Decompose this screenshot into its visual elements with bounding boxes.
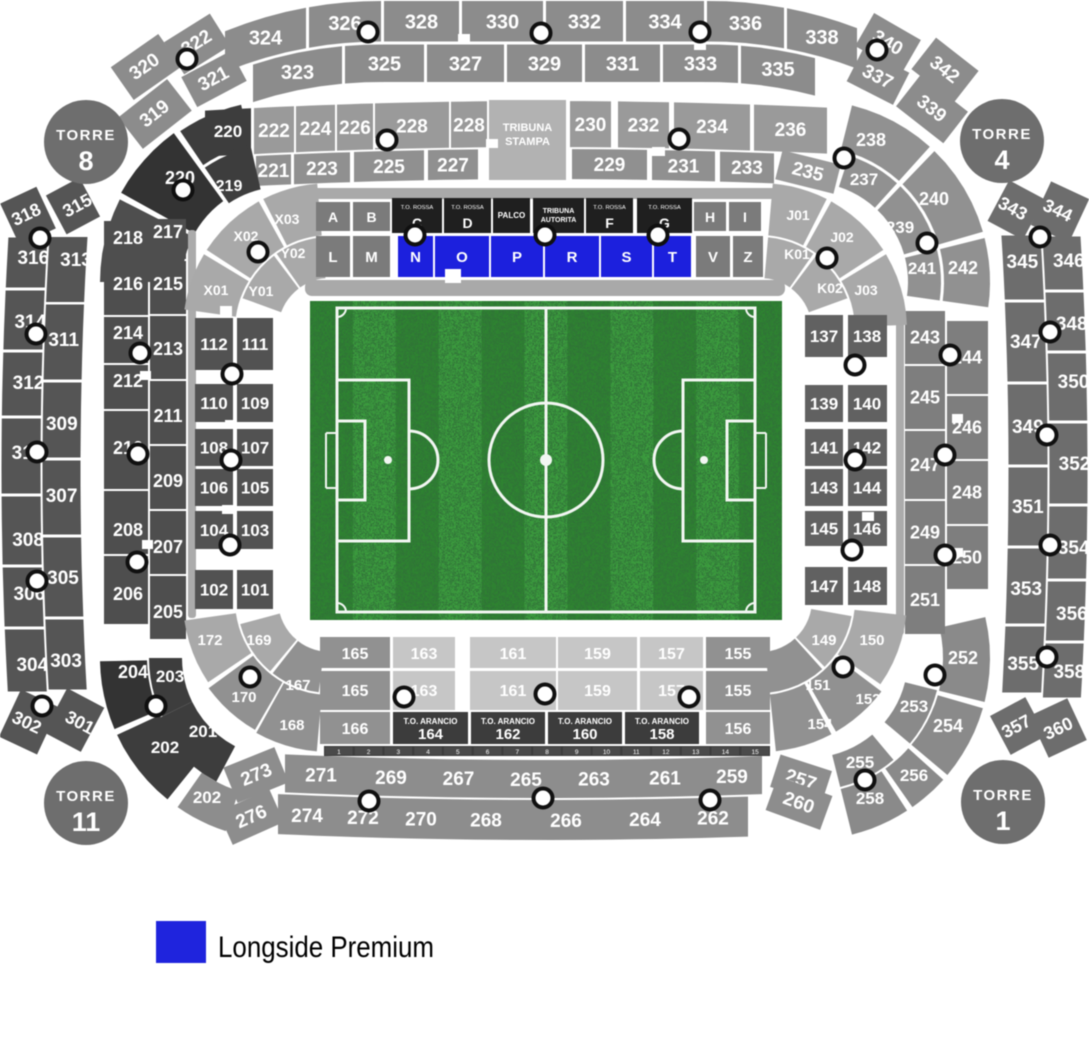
svg-text:207: 207 (153, 537, 183, 557)
svg-text:159: 159 (584, 683, 611, 700)
svg-text:346: 346 (1053, 251, 1085, 272)
svg-text:101: 101 (241, 581, 269, 600)
svg-text:I: I (743, 209, 747, 225)
svg-text:R: R (567, 249, 578, 266)
svg-text:313: 313 (60, 250, 92, 271)
svg-text:D: D (462, 215, 472, 231)
svg-text:159: 159 (584, 646, 611, 663)
svg-text:T: T (668, 249, 677, 266)
svg-text:148: 148 (853, 577, 881, 596)
svg-text:X01: X01 (204, 282, 229, 298)
svg-text:107: 107 (241, 439, 269, 458)
svg-text:220: 220 (214, 122, 242, 141)
svg-text:N: N (410, 249, 421, 266)
svg-text:271: 271 (305, 766, 337, 787)
svg-text:305: 305 (47, 568, 79, 589)
svg-text:T.O. ARANCIO: T.O. ARANCIO (404, 717, 458, 726)
svg-text:231: 231 (668, 156, 700, 177)
svg-text:268: 268 (470, 811, 502, 832)
svg-text:242: 242 (948, 258, 978, 278)
svg-text:138: 138 (853, 327, 881, 346)
svg-text:T.O. ARANCIO: T.O. ARANCIO (635, 717, 689, 726)
svg-text:354: 354 (1058, 538, 1089, 559)
svg-text:347: 347 (1010, 332, 1042, 353)
svg-text:225: 225 (373, 157, 405, 178)
svg-text:259: 259 (716, 767, 748, 788)
svg-text:221: 221 (258, 161, 290, 182)
svg-text:158: 158 (649, 726, 674, 743)
svg-text:269: 269 (375, 768, 407, 789)
svg-text:X03: X03 (275, 211, 300, 227)
svg-text:102: 102 (200, 581, 228, 600)
svg-text:T.O. ROSSA: T.O. ROSSA (648, 205, 681, 211)
svg-text:238: 238 (856, 130, 886, 150)
svg-text:236: 236 (775, 120, 807, 141)
svg-text:147: 147 (810, 577, 838, 596)
svg-text:206: 206 (113, 584, 143, 604)
svg-text:243: 243 (910, 328, 940, 348)
svg-text:165: 165 (342, 646, 369, 663)
svg-text:227: 227 (437, 156, 469, 177)
svg-text:356: 356 (1056, 604, 1088, 625)
svg-text:234: 234 (696, 117, 728, 138)
svg-text:237: 237 (850, 170, 878, 189)
svg-text:352: 352 (1059, 454, 1089, 475)
svg-text:329: 329 (528, 54, 561, 76)
svg-text:264: 264 (629, 810, 661, 831)
svg-text:1: 1 (995, 806, 1010, 836)
svg-text:12: 12 (662, 749, 670, 756)
svg-text:T.O. ARANCIO: T.O. ARANCIO (481, 717, 535, 726)
svg-text:155: 155 (725, 683, 752, 700)
svg-text:254: 254 (933, 716, 963, 736)
svg-text:TORRE: TORRE (973, 787, 1033, 804)
svg-text:8: 8 (545, 749, 549, 756)
svg-text:169: 169 (246, 632, 271, 649)
svg-text:217: 217 (153, 222, 183, 242)
svg-text:172: 172 (197, 632, 222, 649)
svg-text:137: 137 (810, 327, 838, 346)
svg-text:309: 309 (46, 414, 78, 435)
svg-text:228: 228 (396, 116, 428, 137)
svg-text:218: 218 (113, 228, 143, 248)
svg-text:168: 168 (279, 717, 304, 734)
svg-text:5: 5 (456, 749, 460, 756)
svg-text:336: 336 (729, 13, 762, 35)
svg-text:249: 249 (910, 523, 940, 543)
svg-text:161: 161 (500, 683, 527, 700)
svg-text:255: 255 (846, 753, 874, 772)
svg-text:350: 350 (1058, 372, 1089, 393)
svg-text:308: 308 (12, 530, 44, 551)
svg-text:105: 105 (241, 479, 269, 498)
svg-text:222: 222 (258, 121, 290, 142)
svg-text:7: 7 (515, 749, 519, 756)
svg-text:154: 154 (807, 716, 833, 733)
svg-text:149: 149 (811, 632, 836, 649)
svg-text:307: 307 (46, 486, 78, 507)
svg-text:353: 353 (1010, 579, 1042, 600)
svg-text:9: 9 (575, 749, 579, 756)
svg-text:B: B (366, 209, 376, 225)
svg-text:Z: Z (743, 249, 752, 266)
svg-text:14: 14 (722, 749, 730, 756)
svg-text:162: 162 (495, 726, 520, 743)
svg-text:11: 11 (633, 749, 640, 756)
svg-text:T.O. ROSSA: T.O. ROSSA (401, 205, 434, 211)
svg-text:214: 214 (113, 323, 143, 343)
svg-text:J03: J03 (854, 282, 878, 298)
svg-text:T.O. ROSSA: T.O. ROSSA (451, 205, 484, 211)
svg-text:331: 331 (606, 54, 639, 76)
svg-text:316: 316 (17, 248, 49, 269)
svg-text:323: 323 (281, 62, 314, 84)
svg-text:202: 202 (151, 738, 179, 757)
svg-text:V: V (708, 249, 718, 266)
svg-text:11: 11 (72, 807, 101, 837)
svg-text:170: 170 (231, 689, 256, 706)
svg-text:325: 325 (368, 54, 401, 76)
svg-text:143: 143 (810, 479, 838, 498)
svg-text:TORRE: TORRE (972, 126, 1032, 143)
svg-text:13: 13 (692, 749, 700, 756)
svg-text:261: 261 (649, 769, 681, 790)
svg-text:351: 351 (1012, 497, 1044, 518)
svg-text:216: 216 (113, 274, 143, 294)
svg-text:248: 248 (952, 483, 982, 503)
svg-text:TRIBUNA: TRIBUNA (503, 122, 553, 134)
svg-text:213: 213 (153, 339, 183, 359)
svg-text:K01: K01 (784, 246, 810, 262)
svg-text:205: 205 (153, 602, 183, 622)
svg-text:164: 164 (418, 726, 444, 743)
svg-text:262: 262 (697, 809, 729, 830)
svg-text:258: 258 (856, 789, 884, 808)
svg-text:324: 324 (249, 28, 283, 50)
svg-text:163: 163 (411, 646, 438, 663)
svg-text:263: 263 (578, 770, 610, 791)
svg-text:328: 328 (405, 11, 438, 33)
svg-text:166: 166 (342, 721, 369, 738)
svg-text:252: 252 (948, 648, 978, 668)
svg-text:TRIBUNA: TRIBUNA (543, 208, 575, 215)
svg-text:J02: J02 (830, 229, 854, 245)
svg-text:STAMPA: STAMPA (505, 136, 550, 148)
svg-text:165: 165 (342, 683, 369, 700)
svg-text:312: 312 (13, 373, 45, 394)
svg-text:334: 334 (648, 11, 682, 33)
svg-text:223: 223 (306, 159, 338, 180)
svg-text:S: S (621, 249, 631, 266)
svg-text:1: 1 (337, 749, 341, 756)
svg-text:202: 202 (193, 788, 221, 807)
svg-text:K02: K02 (817, 280, 843, 296)
svg-text:304: 304 (16, 655, 48, 676)
svg-text:152: 152 (855, 691, 880, 708)
svg-text:PALCO: PALCO (498, 211, 525, 220)
svg-text:TORRE: TORRE (56, 127, 116, 144)
svg-text:303: 303 (50, 651, 82, 672)
svg-text:157: 157 (658, 646, 685, 663)
svg-text:330: 330 (486, 11, 519, 33)
svg-text:266: 266 (550, 811, 582, 832)
svg-text:251: 251 (910, 590, 940, 610)
svg-text:110: 110 (200, 394, 227, 413)
svg-text:208: 208 (113, 520, 143, 540)
svg-text:245: 245 (910, 388, 940, 408)
svg-text:T.O. ROSSA: T.O. ROSSA (593, 205, 626, 211)
svg-text:233: 233 (731, 158, 763, 179)
svg-text:140: 140 (853, 395, 881, 414)
svg-text:156: 156 (725, 721, 752, 738)
svg-text:224: 224 (300, 119, 332, 140)
svg-text:229: 229 (594, 155, 626, 176)
svg-text:112: 112 (200, 335, 227, 354)
svg-text:211: 211 (153, 406, 182, 426)
svg-text:10: 10 (603, 749, 611, 756)
svg-text:144: 144 (853, 479, 882, 498)
svg-text:T.O. ARANCIO: T.O. ARANCIO (558, 717, 612, 726)
svg-text:15: 15 (751, 749, 759, 756)
svg-text:270: 270 (405, 810, 437, 831)
svg-text:230: 230 (575, 115, 607, 136)
svg-text:Y02: Y02 (281, 245, 306, 261)
svg-text:335: 335 (761, 59, 794, 81)
svg-text:167: 167 (285, 677, 310, 694)
svg-text:145: 145 (810, 520, 838, 539)
svg-text:O: O (456, 249, 468, 266)
svg-text:151: 151 (805, 677, 830, 694)
svg-text:311: 311 (48, 330, 79, 351)
svg-text:M: M (365, 249, 378, 266)
svg-text:F: F (605, 215, 614, 231)
svg-text:203: 203 (156, 667, 184, 686)
svg-text:201: 201 (189, 722, 217, 741)
svg-text:226: 226 (339, 118, 371, 139)
svg-text:240: 240 (919, 189, 949, 209)
svg-text:146: 146 (853, 520, 881, 539)
svg-text:253: 253 (900, 697, 928, 716)
svg-text:J01: J01 (786, 207, 810, 223)
svg-text:265: 265 (510, 770, 542, 791)
svg-text:8: 8 (78, 146, 93, 176)
svg-text:219: 219 (216, 178, 243, 195)
svg-text:333: 333 (684, 54, 717, 76)
svg-text:267: 267 (443, 769, 475, 790)
svg-text:358: 358 (1053, 662, 1085, 683)
svg-text:327: 327 (449, 54, 482, 76)
svg-text:161: 161 (500, 646, 527, 663)
svg-text:239: 239 (886, 218, 914, 237)
svg-text:209: 209 (153, 471, 183, 491)
svg-text:215: 215 (153, 274, 183, 294)
svg-text:L: L (328, 249, 337, 266)
svg-text:160: 160 (572, 726, 597, 743)
svg-text:332: 332 (568, 11, 601, 33)
svg-text:106: 106 (200, 479, 228, 498)
svg-text:3: 3 (396, 749, 400, 756)
svg-text:Y01: Y01 (249, 283, 274, 299)
svg-text:355: 355 (1007, 654, 1039, 675)
svg-text:A: A (328, 209, 338, 225)
svg-text:103: 103 (241, 521, 269, 540)
svg-text:4: 4 (426, 749, 430, 756)
svg-text:232: 232 (628, 116, 660, 137)
svg-text:111: 111 (242, 335, 269, 354)
svg-text:241: 241 (908, 259, 936, 278)
svg-text:256: 256 (900, 766, 928, 785)
svg-text:228: 228 (453, 115, 485, 136)
svg-text:141: 141 (810, 439, 838, 458)
svg-text:155: 155 (725, 646, 752, 663)
svg-text:204: 204 (118, 662, 148, 682)
svg-text:212: 212 (113, 371, 143, 391)
svg-text:TORRE: TORRE (56, 788, 116, 805)
svg-text:4: 4 (994, 145, 1009, 175)
svg-text:338: 338 (805, 27, 838, 49)
svg-text:150: 150 (859, 632, 884, 649)
svg-text:Longside Premium: Longside Premium (218, 931, 434, 964)
svg-text:P: P (512, 249, 522, 266)
svg-text:345: 345 (1007, 252, 1039, 273)
svg-text:109: 109 (241, 394, 269, 413)
svg-text:274: 274 (291, 806, 323, 827)
svg-text:AUTORITA: AUTORITA (541, 217, 577, 224)
svg-text:139: 139 (810, 395, 838, 414)
svg-text:H: H (705, 209, 715, 225)
svg-text:6: 6 (486, 749, 490, 756)
svg-text:2: 2 (367, 749, 371, 756)
